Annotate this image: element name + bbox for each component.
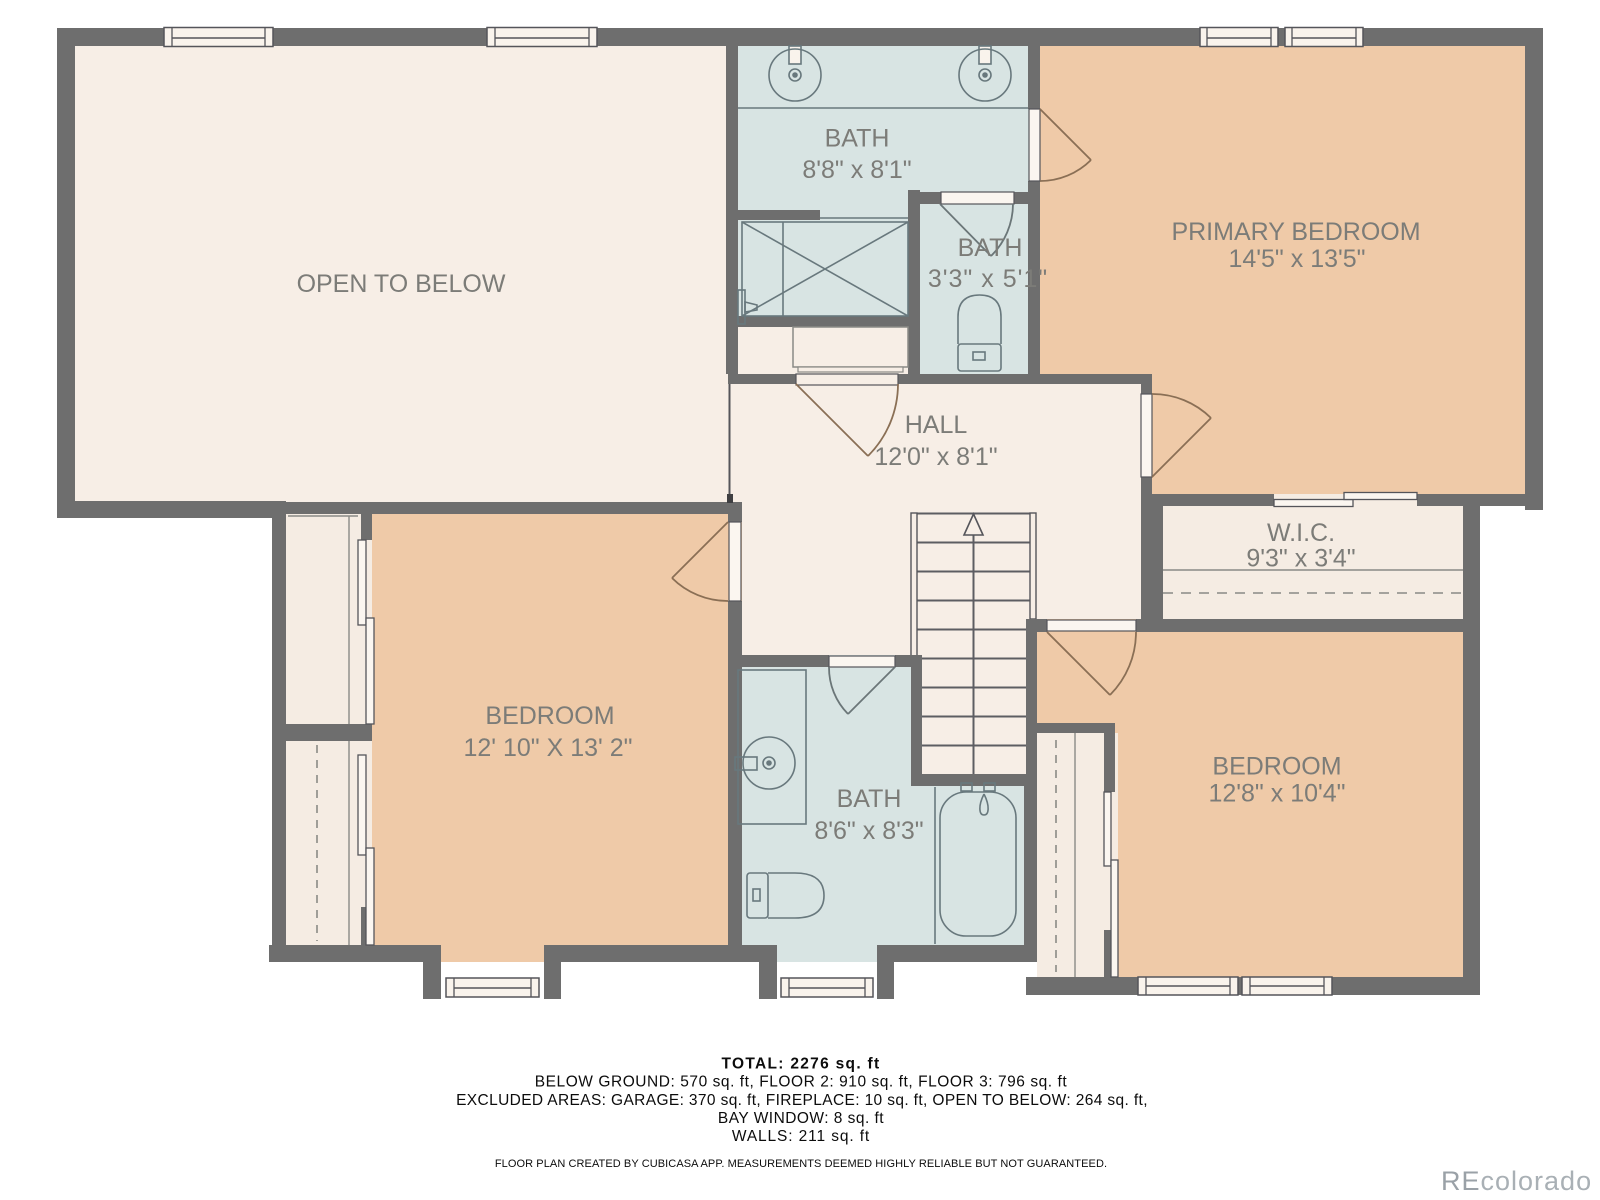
svg-text:3'3" x 5'1": 3'3" x 5'1": [928, 265, 1048, 293]
svg-text:14'5" x 13'5": 14'5" x 13'5": [1228, 245, 1365, 273]
svg-text:BATH: BATH: [825, 125, 890, 153]
svg-text:9'3" x 3'4": 9'3" x 3'4": [1246, 545, 1355, 573]
svg-text:REcolorado: REcolorado: [1441, 1166, 1592, 1196]
svg-text:BEDROOM: BEDROOM: [485, 702, 614, 730]
svg-text:W.I.C.: W.I.C.: [1267, 519, 1335, 547]
svg-text:BEDROOM: BEDROOM: [1212, 753, 1341, 781]
svg-text:BATH: BATH: [837, 785, 902, 813]
svg-text:TOTAL: 2276 sq. ft: TOTAL: 2276 sq. ft: [722, 1056, 881, 1073]
svg-text:12' 10" X 13' 2": 12' 10" X 13' 2": [463, 734, 632, 762]
svg-text:BELOW GROUND: 570 sq. ft, FLOO: BELOW GROUND: 570 sq. ft, FLOOR 2: 910 s…: [535, 1074, 1068, 1091]
svg-text:BAY WINDOW: 8 sq. ft: BAY WINDOW: 8 sq. ft: [718, 1110, 884, 1127]
svg-text:EXCLUDED AREAS: GARAGE: 370 sq: EXCLUDED AREAS: GARAGE: 370 sq. ft, FIRE…: [456, 1092, 1148, 1109]
svg-text:12'0" x 8'1": 12'0" x 8'1": [874, 443, 997, 471]
svg-text:8'6" x 8'3": 8'6" x 8'3": [814, 817, 923, 845]
svg-text:BATH: BATH: [958, 234, 1023, 262]
svg-text:12'8" x 10'4": 12'8" x 10'4": [1208, 780, 1345, 808]
svg-text:HALL: HALL: [905, 411, 968, 439]
svg-text:8'8" x 8'1": 8'8" x 8'1": [802, 156, 911, 184]
svg-text:OPEN TO BELOW: OPEN TO BELOW: [297, 270, 506, 298]
svg-text:FLOOR PLAN CREATED BY CUBICASA: FLOOR PLAN CREATED BY CUBICASA APP. MEAS…: [495, 1158, 1107, 1170]
svg-text:WALLS: 211 sq. ft: WALLS: 211 sq. ft: [732, 1128, 870, 1145]
svg-text:PRIMARY BEDROOM: PRIMARY BEDROOM: [1171, 218, 1420, 246]
